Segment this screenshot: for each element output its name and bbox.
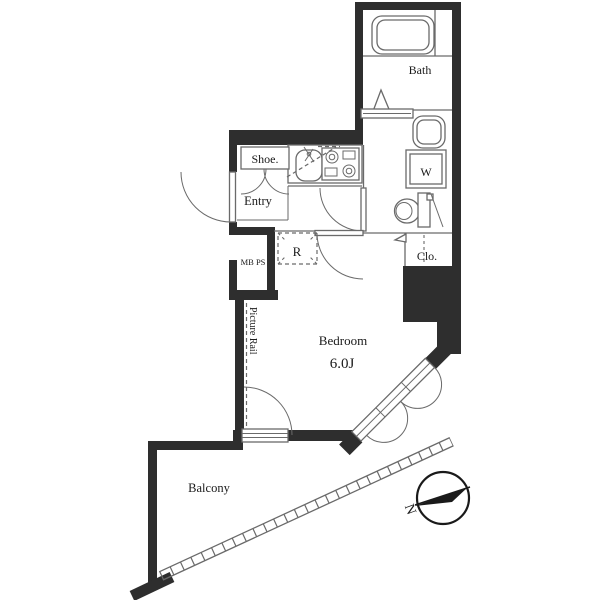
floor-plan-page: N Bath Shoe. Entry W R Clo. MB PS Pictur…: [0, 0, 600, 600]
label-closet: Clo.: [417, 249, 437, 263]
wall-closet-block: [403, 266, 461, 322]
wall-mbps-left: [229, 260, 237, 300]
fridge-tick-4: [309, 256, 317, 264]
wall-balcony-left: [148, 441, 157, 587]
fridge-tick-3: [278, 256, 286, 264]
label-washer: W: [420, 165, 432, 179]
balcony-door-group: [339, 341, 468, 470]
label-bedroom: Bedroom: [319, 333, 367, 348]
label-picture-rail: Picture Rail: [247, 307, 258, 355]
wall-bath-left: [355, 2, 363, 145]
compass-north-label: N: [401, 502, 419, 517]
fridge-tick-2: [309, 233, 317, 241]
floor-plan-canvas: N Bath Shoe. Entry W R Clo. MB PS Pictur…: [0, 0, 600, 600]
wall-bedroom-left: [235, 298, 244, 432]
bedroom-window: [242, 429, 288, 442]
label-meter-box: MB PS: [241, 257, 266, 267]
wall-entry-left-upper: [229, 130, 237, 172]
washbasin-inner: [417, 120, 441, 144]
toilet-partition-line: [431, 194, 443, 227]
label-balcony: Balcony: [188, 481, 230, 495]
fridge-tick-1: [278, 233, 286, 241]
entry-door-leaf: [230, 172, 236, 222]
label-bath: Bath: [409, 63, 432, 77]
label-shoe: Shoe.: [252, 152, 279, 166]
shoe-door-arc-right: [264, 169, 289, 194]
label-bedroom-size: 6.0J: [330, 356, 355, 372]
label-entry: Entry: [244, 194, 273, 208]
bedroom-door-arc: [317, 233, 363, 279]
shoe-door-arc-left: [241, 169, 266, 194]
wall-kitchen-top: [229, 130, 363, 145]
entry-door-arc: [181, 172, 231, 222]
washroom-door-arc: [320, 188, 363, 231]
sliding-door-track: [356, 363, 430, 437]
kitchen: [287, 145, 362, 186]
compass-icon: N: [401, 472, 470, 524]
wall-right-upper: [452, 2, 461, 267]
wall-top: [355, 2, 461, 10]
bedroom-window-arc: [244, 387, 292, 435]
wall-mbps-right: [267, 227, 275, 300]
closet-door-icon: [395, 234, 406, 242]
bathtub-inner: [377, 20, 429, 50]
bath-room: [361, 10, 452, 118]
bedroom-door-leaf: [315, 231, 363, 236]
label-fridge: R: [293, 244, 302, 259]
washroom-door-leaf: [361, 188, 366, 231]
wall-balcony-top: [150, 441, 242, 450]
